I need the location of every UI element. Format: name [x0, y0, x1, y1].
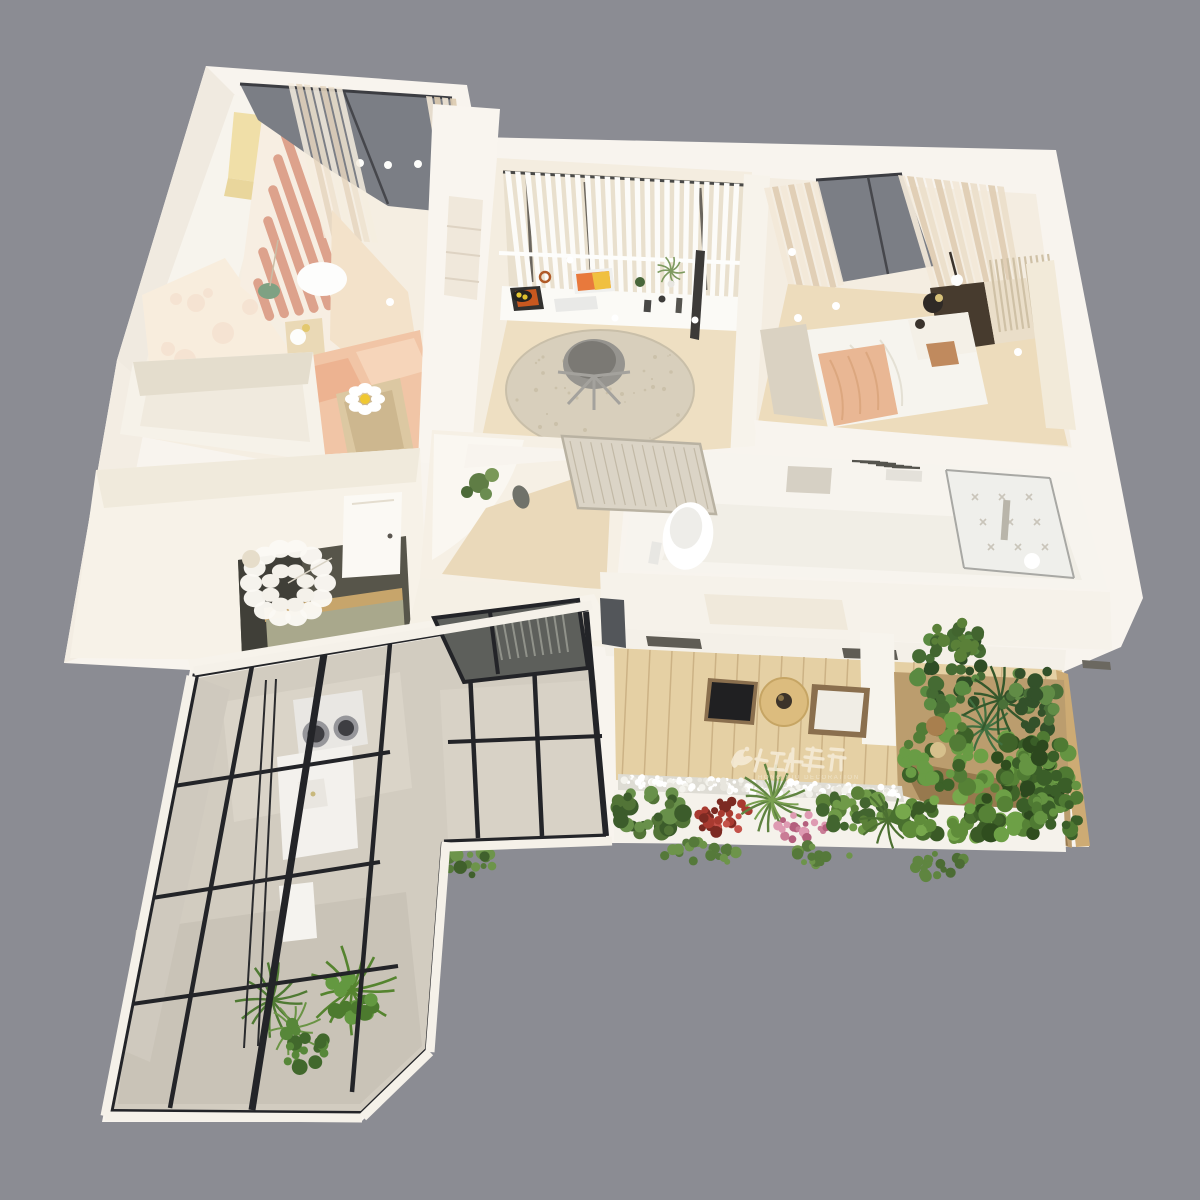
svg-text:HONG NIU DECORATION: HONG NIU DECORATION	[758, 775, 860, 781]
